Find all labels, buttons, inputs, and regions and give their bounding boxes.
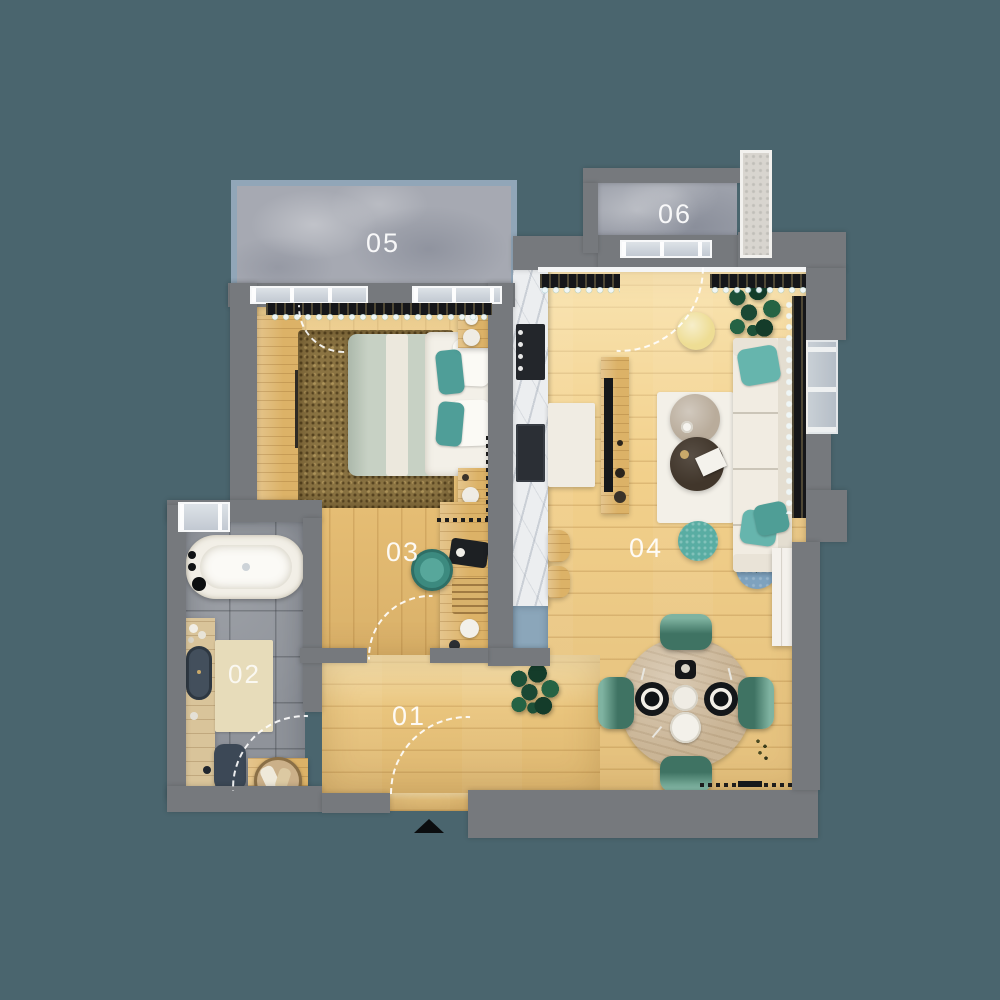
kitchen-island xyxy=(548,403,595,487)
living-curtain-right xyxy=(710,274,806,288)
desk-slat-box xyxy=(452,578,488,614)
bed-duvet-fold xyxy=(386,334,408,476)
bathroom-vanity xyxy=(183,618,215,790)
bathtub-drain xyxy=(242,563,250,571)
doormat-dark-bar xyxy=(738,781,762,787)
floor-sprig-deco xyxy=(752,736,772,762)
bedroom-window-right xyxy=(412,286,502,304)
sofa-seam-1 xyxy=(733,412,778,414)
bathroom-window xyxy=(178,502,230,532)
bath-faucet-knob-2 xyxy=(188,563,196,571)
wall-kitchen-stub xyxy=(488,648,550,666)
coffee-table-deco xyxy=(680,450,689,459)
dining-plate-dark-left xyxy=(635,682,669,716)
living-curtain-side-folds xyxy=(786,300,794,514)
wall-bedroom-door-left xyxy=(300,648,367,663)
desk-edge-dashes xyxy=(437,518,489,522)
living-curtain-left-folds xyxy=(540,287,620,295)
bath-faucet-spout xyxy=(192,577,206,591)
bed-pillow-teal-bottom xyxy=(435,401,465,447)
wall-bottom-right xyxy=(468,790,818,838)
living-curtain-right-folds xyxy=(710,287,806,295)
sofa-seam-2 xyxy=(733,468,778,470)
tv-bench-knob-1 xyxy=(617,440,623,446)
entrance-marker-icon xyxy=(414,819,444,833)
wall-bathroom-divider xyxy=(303,518,322,712)
cooktop-knob-2 xyxy=(518,342,523,347)
dining-chair-west xyxy=(598,677,634,729)
bar-stool-2 xyxy=(548,566,570,598)
pouf-teal xyxy=(678,521,718,561)
room-label-balcony-05: 05 xyxy=(366,230,400,257)
nightstand-bottom-deco xyxy=(462,474,469,481)
bed-pillow-teal-top xyxy=(435,349,465,395)
bath-faucet-knob-1 xyxy=(188,551,196,559)
tv xyxy=(604,378,613,492)
right-wall-window xyxy=(806,340,838,434)
balcony06-window xyxy=(620,240,712,258)
cooktop-knob-4 xyxy=(518,366,523,371)
toilet-flush xyxy=(203,766,211,774)
vanity-candle-1 xyxy=(189,624,198,633)
kitchen-sink xyxy=(516,424,545,482)
room-label-bathroom: 02 xyxy=(228,661,261,687)
kitchen-mat xyxy=(513,606,548,652)
bedroom-stool-top xyxy=(420,558,444,582)
wall-hallway-bottom-left xyxy=(322,793,390,813)
dining-chair-north xyxy=(660,614,712,650)
wall-bathroom-left xyxy=(167,505,186,800)
wall-bedroom-living-divider xyxy=(488,283,513,666)
desk-tray-dot xyxy=(456,548,465,557)
vanity-candle-2 xyxy=(198,631,206,639)
dining-plate-white-bottom xyxy=(670,712,701,743)
stone-column xyxy=(740,150,772,258)
dining-chair-east xyxy=(738,677,774,729)
room-label-hallway: 01 xyxy=(392,703,426,730)
wall-right-upper xyxy=(806,268,846,340)
nightstand-top-lamp-2 xyxy=(463,329,480,346)
bar-stool-1 xyxy=(548,530,570,562)
wall-bedroom-left xyxy=(230,283,257,520)
vanity-basin-drain xyxy=(197,670,201,674)
room-label-balcony-06: 06 xyxy=(658,201,692,228)
vanity-candle-3 xyxy=(188,637,194,643)
cooktop-knob-1 xyxy=(518,330,523,335)
coffee-table-light-cup xyxy=(681,421,693,433)
tv-bench-knob-2 xyxy=(615,468,625,478)
cooktop-knob-3 xyxy=(518,354,523,359)
tv-bench-knob-3 xyxy=(614,491,626,503)
living-curtain-side xyxy=(792,296,806,518)
desk-tray xyxy=(448,537,489,568)
living-curtain-left xyxy=(540,274,620,288)
bedroom-window-left xyxy=(250,286,368,304)
white-shelf xyxy=(772,548,792,646)
room-label-bedroom: 03 xyxy=(386,539,420,566)
dining-centerpiece-glass xyxy=(681,664,690,673)
floor-plan: 01 02 03 04 05 06 xyxy=(0,0,1000,1000)
wall-right-lower xyxy=(792,542,820,790)
wall-balcony06-top xyxy=(583,168,740,183)
vanity-bottle xyxy=(190,712,198,720)
wall-bedroom-door-right xyxy=(430,648,488,663)
room-label-living: 04 xyxy=(629,535,663,562)
dining-plate-dark-right xyxy=(704,682,738,716)
dining-plate-white-center xyxy=(672,685,698,711)
sofa-pillow-teal-top xyxy=(736,344,782,387)
plant-hallway xyxy=(505,662,563,718)
wall-right-bump xyxy=(806,490,847,542)
wall-right-mid xyxy=(806,434,831,490)
desk-lamp xyxy=(460,619,479,638)
wall-balcony06-left xyxy=(583,183,598,253)
